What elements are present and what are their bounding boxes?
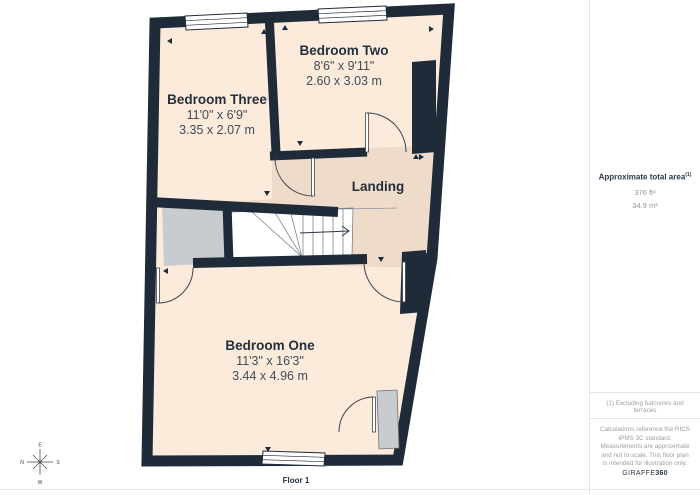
compass-rose-icon: E N S W <box>16 436 66 488</box>
total-area-sqft: 376 ft² <box>590 188 700 197</box>
sidebar-divider <box>590 418 700 419</box>
room-label-landing: Landing <box>352 179 405 195</box>
floor-label: Floor 1 <box>283 476 310 485</box>
disclaimer-text: Calculations reference the RICS IPMS 3C … <box>590 426 700 469</box>
total-area-superscript: (1) <box>685 172 691 178</box>
total-area-sqm: 34.9 m² <box>590 201 700 210</box>
room-label-bedroom-two: Bedroom Two 8'6" x 9'11" 2.60 x 3.03 m <box>300 43 389 89</box>
window-top-right <box>318 6 387 23</box>
room-dims-metric: 3.44 x 4.96 m <box>225 369 314 384</box>
sidebar-divider <box>590 392 700 393</box>
compass-east-label: E <box>38 443 42 449</box>
area-footnote: (1) Excluding balconies and terraces <box>590 400 700 414</box>
window-bottom <box>262 451 325 466</box>
window-top-left <box>185 13 248 30</box>
floorplan-page: Bedroom Three 11'0" x 6'9" 3.35 x 2.07 m… <box>0 0 700 495</box>
brand-suffix: 360 <box>655 470 667 477</box>
room-dims-imperial: 8'6" x 9'11" <box>300 59 389 74</box>
room-label-bedroom-three: Bedroom Three 11'0" x 6'9" 3.35 x 2.07 m <box>167 92 267 138</box>
room-dims-metric: 3.35 x 2.07 m <box>167 123 267 138</box>
room-dims-imperial: 11'3" x 16'3" <box>225 354 314 369</box>
room-label-bedroom-one: Bedroom One 11'3" x 16'3" 3.44 x 4.96 m <box>225 338 314 384</box>
total-area-title: Approximate total area(1) <box>590 172 700 182</box>
compass-south-label: S <box>56 460 60 466</box>
compass-west-label: W <box>38 480 43 486</box>
room-name: Landing <box>352 179 405 195</box>
room-name: Bedroom One <box>225 338 314 354</box>
giraffe360-logo: GIRAFFE360 <box>590 470 700 477</box>
total-area-label: Approximate total area <box>599 173 686 182</box>
room-dims-metric: 2.60 x 3.03 m <box>300 74 389 89</box>
bottom-border-line <box>0 489 700 490</box>
room-name: Bedroom Two <box>300 43 389 59</box>
brand-name: GIRAFFE <box>622 470 655 477</box>
info-sidebar: Approximate total area(1) 376 ft² 34.9 m… <box>589 0 700 495</box>
compass-north-label: N <box>20 460 24 466</box>
room-dims-imperial: 11'0" x 6'9" <box>167 108 267 123</box>
room-name: Bedroom Three <box>167 92 267 108</box>
stair-void-gray <box>162 203 227 266</box>
